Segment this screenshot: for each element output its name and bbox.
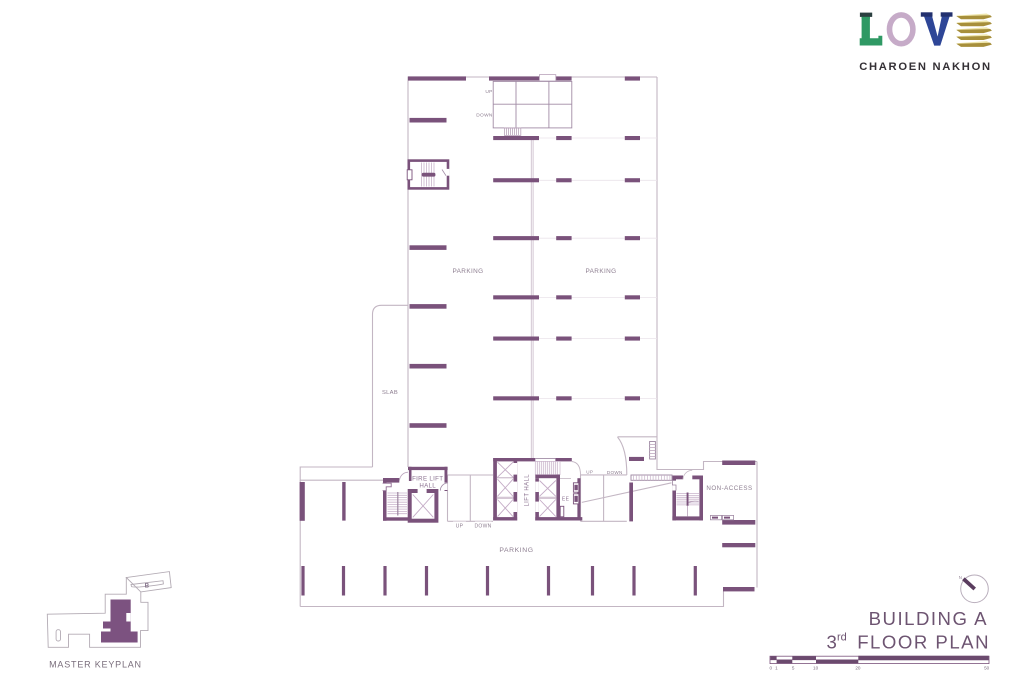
svg-text:BUILDING A: BUILDING A — [869, 608, 988, 629]
svg-text:rd: rd — [837, 632, 847, 644]
svg-text:LIFT HALL: LIFT HALL — [524, 474, 530, 507]
svg-text:50: 50 — [984, 665, 990, 670]
svg-text:PARKING: PARKING — [499, 547, 533, 554]
svg-text:MASTER KEYPLAN: MASTER KEYPLAN — [49, 660, 142, 670]
svg-text:5: 5 — [792, 665, 795, 670]
svg-text:1: 1 — [775, 665, 778, 670]
svg-text:0: 0 — [770, 665, 773, 670]
svg-text:DOWN: DOWN — [607, 470, 623, 475]
svg-text:N: N — [959, 575, 962, 580]
svg-text:CHAROEN NAKHON: CHAROEN NAKHON — [859, 61, 992, 73]
svg-text:UP: UP — [586, 469, 593, 474]
svg-text:FIRE LIFT: FIRE LIFT — [412, 475, 443, 482]
svg-text:PARKING: PARKING — [452, 268, 483, 275]
svg-text:FLOOR PLAN: FLOOR PLAN — [857, 632, 990, 653]
svg-text:NON-ACCESS: NON-ACCESS — [706, 485, 752, 492]
svg-text:UP: UP — [485, 89, 492, 95]
svg-text:PARKING: PARKING — [585, 268, 616, 275]
svg-text:10: 10 — [813, 665, 819, 670]
svg-text:3: 3 — [827, 632, 837, 653]
svg-text:SLAB: SLAB — [382, 390, 398, 396]
svg-text:B: B — [145, 582, 150, 589]
svg-text:DOWN: DOWN — [474, 523, 491, 529]
svg-text:DOWN: DOWN — [476, 112, 493, 118]
svg-text:UP: UP — [456, 523, 464, 529]
svg-text:EE: EE — [562, 497, 570, 503]
svg-text:HALL: HALL — [419, 483, 436, 490]
svg-text:20: 20 — [855, 665, 861, 670]
